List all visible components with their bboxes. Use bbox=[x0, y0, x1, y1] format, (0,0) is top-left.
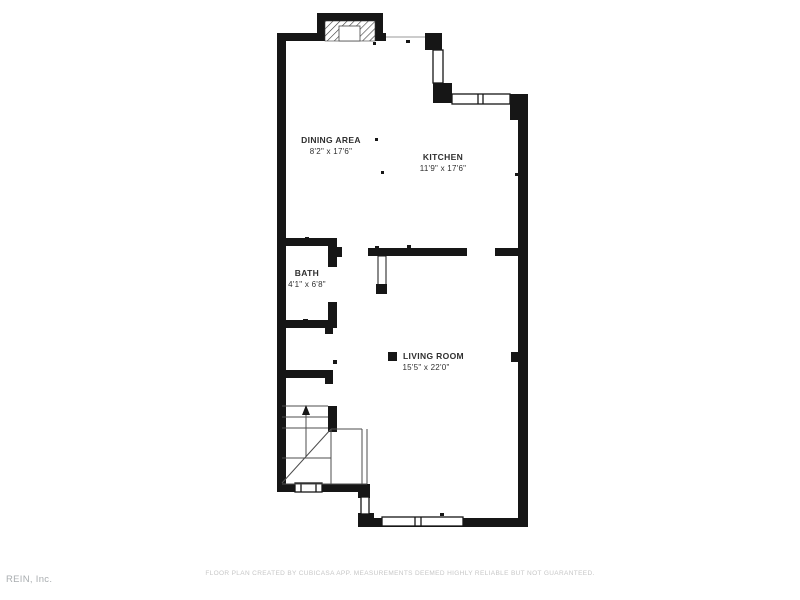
marker-dot bbox=[440, 513, 444, 516]
closet-wall-east-upper bbox=[325, 320, 333, 334]
wall-left bbox=[277, 33, 286, 492]
room-name: LIVING ROOM bbox=[403, 351, 464, 361]
marker-dot bbox=[515, 173, 519, 176]
marker-dot bbox=[373, 42, 376, 45]
door-end-block bbox=[376, 284, 387, 294]
window-west-step bbox=[361, 497, 369, 514]
wall-step-corner bbox=[358, 484, 370, 498]
window-east-upper bbox=[433, 50, 443, 83]
wall-bump bbox=[511, 352, 519, 362]
room-label-dining-area: DINING AREA 8'2" x 17'6" bbox=[276, 135, 386, 156]
door-leaf bbox=[378, 256, 386, 285]
marker-dot bbox=[407, 245, 411, 248]
room-label-living-room: LIVING ROOM 15'5" x 22'0" bbox=[366, 351, 486, 372]
wall-corner-sw bbox=[358, 513, 374, 527]
room-dimensions: 15'5" x 22'0" bbox=[366, 363, 486, 372]
closet-wall-east-lower bbox=[325, 370, 333, 384]
open-door bbox=[376, 256, 387, 294]
marker-dot bbox=[375, 246, 379, 249]
wall-corner-ne-a bbox=[425, 33, 442, 50]
kitchen-living-divider-wall bbox=[368, 248, 467, 256]
room-name: DINING AREA bbox=[276, 135, 386, 145]
marker-dot bbox=[303, 319, 308, 322]
room-dimensions: 11'9" x 17'6" bbox=[388, 164, 498, 173]
watermark-text: REIN, Inc. bbox=[6, 574, 52, 585]
room-label-kitchen: KITCHEN 11'9" x 17'6" bbox=[388, 152, 498, 173]
living-room-marker-icon bbox=[388, 352, 397, 361]
wall-corner-ne-b bbox=[433, 83, 452, 103]
room-name: BATH bbox=[264, 268, 350, 278]
disclaimer-text: FLOOR PLAN CREATED BY CUBICASA APP. MEAS… bbox=[0, 570, 800, 577]
stair-wall-stub bbox=[328, 406, 337, 432]
room-dimensions: 4'1" x 6'8" bbox=[264, 280, 350, 289]
marker-dot bbox=[305, 237, 309, 240]
room-name: KITCHEN bbox=[388, 152, 498, 162]
marker-dot bbox=[333, 360, 337, 364]
closet-wall-bottom bbox=[277, 370, 333, 378]
door-jamb bbox=[332, 247, 342, 257]
floor-plan-drawing bbox=[0, 0, 800, 600]
divider-wall-stub bbox=[495, 248, 518, 256]
room-label-bath: BATH 4'1" x 6'8" bbox=[264, 268, 350, 289]
wall-top-left bbox=[277, 33, 322, 41]
window-south-living bbox=[382, 517, 463, 526]
window-north-kitchen bbox=[452, 94, 510, 104]
firebox bbox=[339, 26, 360, 41]
floor-plan-page: DINING AREA 8'2" x 17'6" KITCHEN 11'9" x… bbox=[0, 0, 800, 600]
marker-dot bbox=[441, 253, 445, 256]
wall-right bbox=[518, 94, 528, 527]
fireplace bbox=[317, 13, 383, 41]
marker-dot bbox=[406, 40, 410, 43]
room-dimensions: 8'2" x 17'6" bbox=[276, 147, 386, 156]
marker-dot bbox=[381, 171, 384, 174]
staircase bbox=[282, 405, 367, 484]
